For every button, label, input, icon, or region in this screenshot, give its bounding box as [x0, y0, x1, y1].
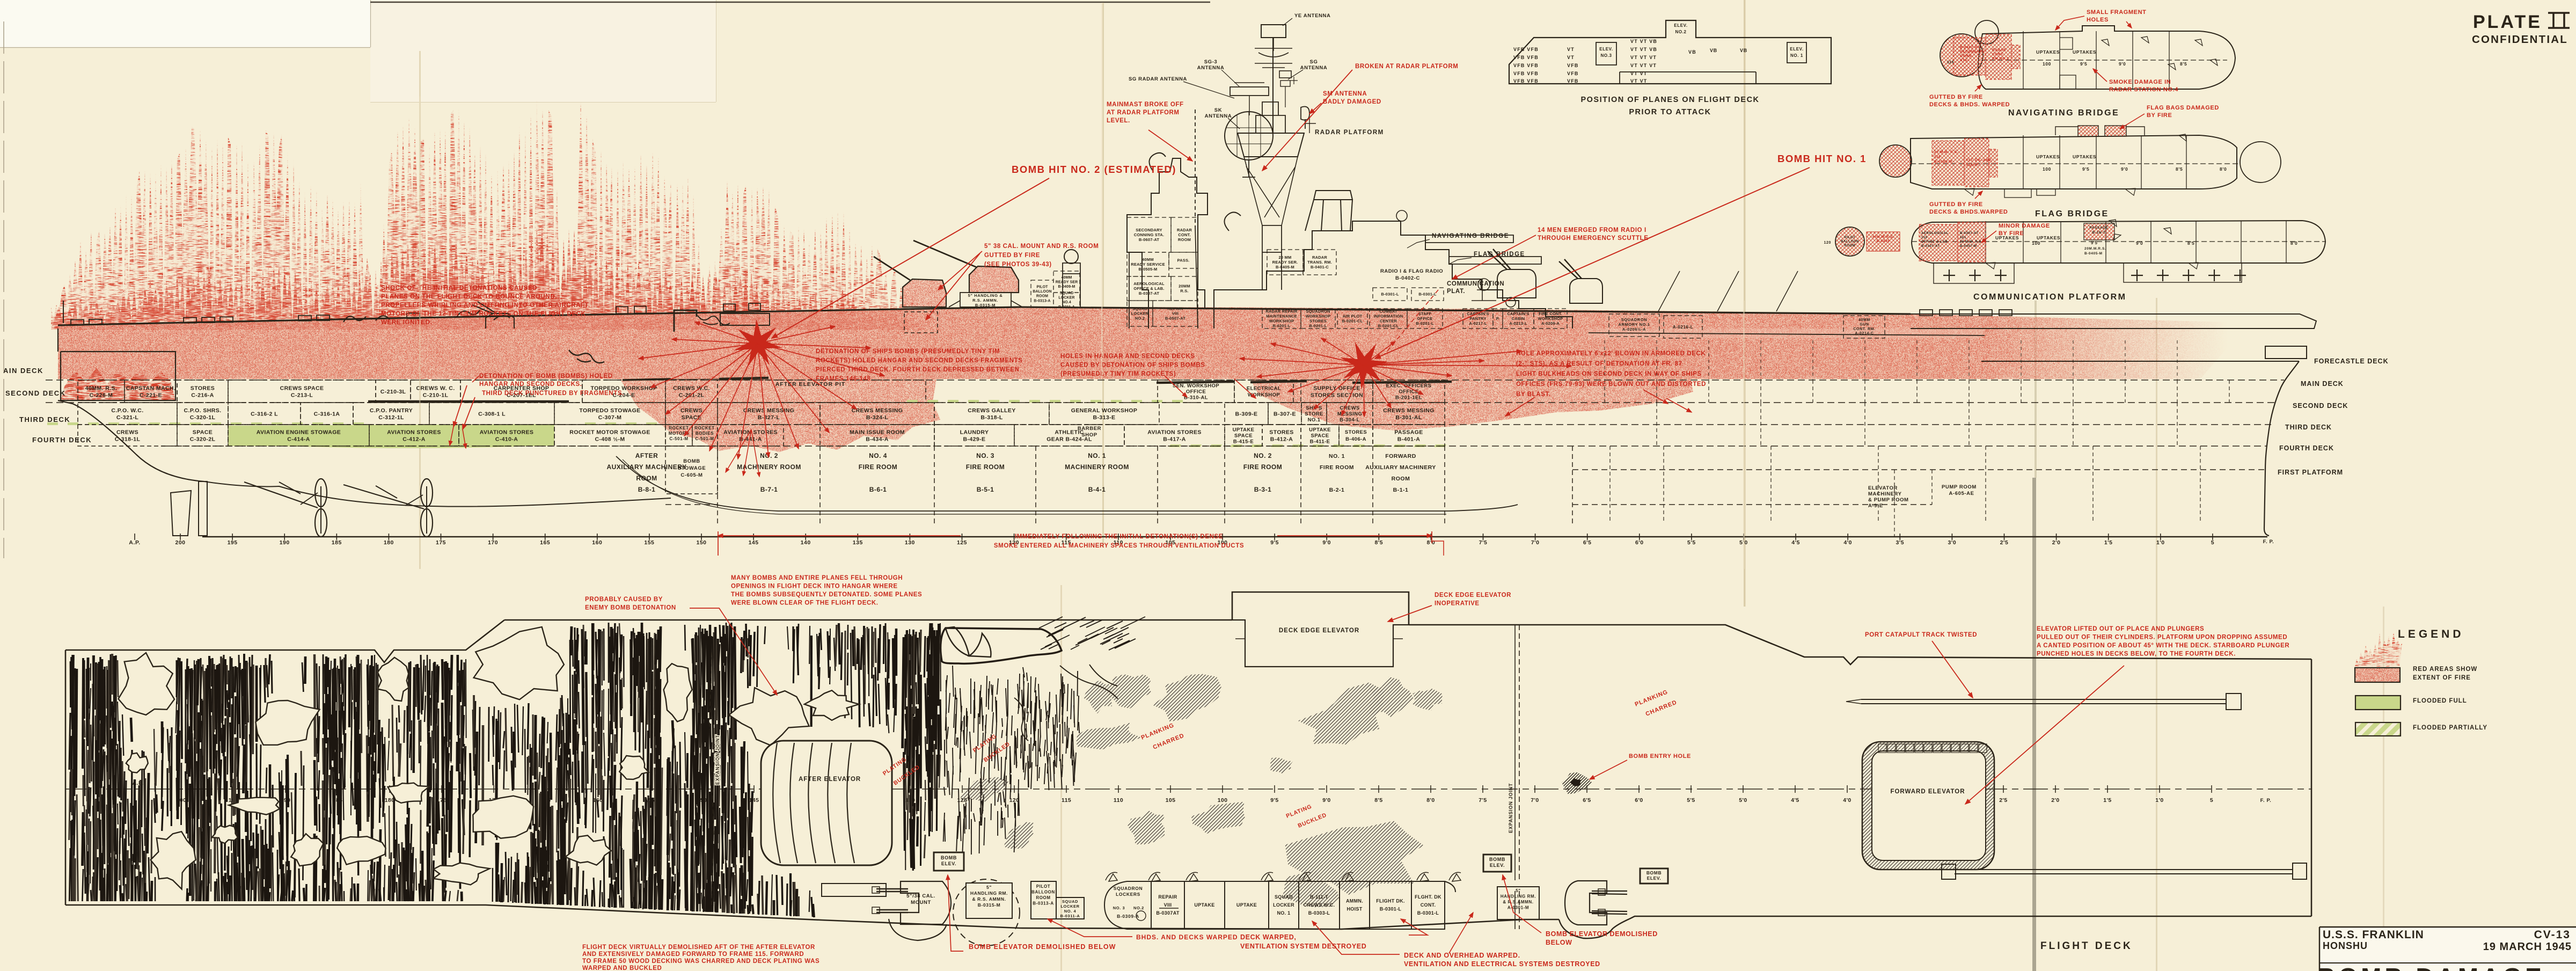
- svg-text:NO.2: NO.2: [1133, 906, 1144, 910]
- svg-text:CREWS GALLEY: CREWS GALLEY: [968, 407, 1015, 414]
- svg-text:VFB: VFB: [1567, 78, 1579, 84]
- svg-text:20 MM: 20 MM: [1279, 255, 1292, 260]
- svg-text:B-0607-AT: B-0607-AT: [1960, 46, 1980, 49]
- svg-text:UPTAKES: UPTAKES: [2036, 154, 2060, 159]
- svg-text:THROUGH EMERGENCY SCUTTLE: THROUGH EMERGENCY SCUTTLE: [1538, 235, 1648, 242]
- svg-text:B-0409-M: B-0409-M: [1058, 285, 1075, 289]
- svg-text:MACHINERY ROOM: MACHINERY ROOM: [1065, 463, 1129, 471]
- svg-text:CREWS MESSING: CREWS MESSING: [743, 407, 795, 414]
- svg-text:MINOR DAMAGE: MINOR DAMAGE: [1999, 223, 2050, 229]
- svg-text:WORKSHOP: WORKSHOP: [1269, 319, 1294, 324]
- svg-text:PROBABLY CAUSED BY: PROBABLY CAUSED BY: [585, 596, 663, 603]
- svg-text:BOMB HIT NO. 2 (ESTIMATED): BOMB HIT NO. 2 (ESTIMATED): [1012, 164, 1176, 175]
- svg-text:B-0505-M: B-0505-M: [1934, 160, 1952, 164]
- svg-text:B-0201-L: B-0201-L: [1309, 324, 1327, 328]
- svg-text:UPTAKES: UPTAKES: [2073, 49, 2096, 55]
- svg-text:100: 100: [2043, 166, 2051, 172]
- svg-text:B-429-E: B-429-E: [963, 436, 986, 442]
- svg-text:5'5: 5'5: [1687, 797, 1695, 804]
- svg-text:PLATE: PLATE: [2473, 12, 2542, 32]
- svg-text:AMMN.: AMMN.: [1346, 899, 1363, 904]
- svg-text:PUMP ROOM: PUMP ROOM: [1942, 484, 1977, 490]
- svg-text:C-213-L: C-213-L: [291, 392, 313, 398]
- svg-text:OPENINGS IN FLIGHT DECK INTO H: OPENINGS IN FLIGHT DECK INTO HANGAR WHER…: [731, 583, 898, 590]
- svg-text:F. P.: F. P.: [2260, 798, 2272, 804]
- svg-text:100: 100: [1218, 797, 1228, 804]
- svg-text:OFFICE & LAB: OFFICE & LAB: [1921, 240, 1948, 244]
- svg-text:4'5: 4'5: [1791, 539, 1800, 546]
- svg-text:5"/38 CAL.: 5"/38 CAL.: [906, 893, 935, 899]
- svg-text:ENEMY BOMB DETONATION: ENEMY BOMB DETONATION: [585, 605, 676, 611]
- svg-text:VFB VFB: VFB VFB: [1513, 71, 1539, 76]
- svg-text:ELEV.: ELEV.: [1599, 47, 1613, 52]
- svg-text:MACHINERY ROOM: MACHINERY ROOM: [737, 463, 801, 471]
- svg-text:40M.M.R.S.: 40M.M.R.S.: [1872, 235, 1894, 239]
- svg-text:THIRD DECK PUNCTURED BY FRAGME: THIRD DECK PUNCTURED BY FRAGMENTS.: [482, 390, 624, 397]
- svg-text:B-0505-M: B-0505-M: [1139, 267, 1158, 272]
- svg-text:VFB VFB: VFB VFB: [1513, 78, 1539, 84]
- svg-text:1'0: 1'0: [2156, 539, 2165, 546]
- svg-text:BOMB HIT NO. 1: BOMB HIT NO. 1: [1777, 153, 1867, 164]
- svg-text:B-7-1: B-7-1: [760, 486, 778, 493]
- svg-text:40MM: 40MM: [1858, 318, 1870, 322]
- svg-text:20 M.M. R.S.: 20 M.M. R.S.: [1960, 240, 1982, 244]
- svg-text:INOPERATIVE: INOPERATIVE: [1435, 601, 1480, 607]
- svg-text:CREWS MESSING: CREWS MESSING: [852, 407, 903, 414]
- svg-text:SQUADRON: SQUADRON: [1114, 886, 1143, 891]
- svg-text:B-304-L: B-304-L: [1340, 417, 1360, 423]
- svg-text:VFB VFB: VFB VFB: [1513, 47, 1539, 52]
- svg-text:B-0301-L: B-0301-L: [1418, 292, 1436, 297]
- svg-text:SQUAD: SQUAD: [1060, 291, 1074, 295]
- svg-text:VFB VFB: VFB VFB: [1513, 55, 1539, 60]
- svg-text:ELEVATOR: ELEVATOR: [1868, 485, 1898, 491]
- svg-text:C-221-E: C-221-E: [140, 392, 162, 398]
- svg-text:WERE IGNITED.: WERE IGNITED.: [381, 319, 432, 326]
- svg-text:STORE: STORE: [1305, 411, 1323, 417]
- svg-text:& R.S.AMMN.: & R.S.AMMN.: [1503, 900, 1533, 904]
- svg-text:7'0: 7'0: [1531, 797, 1539, 804]
- svg-text:ELEV.: ELEV.: [1790, 47, 1803, 52]
- svg-text:B-0301-L: B-0301-L: [1381, 292, 1399, 297]
- svg-text:AT RADAR PLATFORM: AT RADAR PLATFORM: [1107, 109, 1180, 116]
- svg-text:EXTENT OF FIRE: EXTENT OF FIRE: [2413, 675, 2471, 681]
- svg-text:BALLOON: BALLOON: [1033, 290, 1051, 294]
- svg-text:HONSHU: HONSHU: [2323, 940, 2368, 951]
- svg-text:SQUADRON: SQUADRON: [1306, 309, 1330, 314]
- svg-text:CV-13: CV-13: [2534, 929, 2571, 941]
- svg-text:VT VT VB: VT VT VB: [1630, 39, 1657, 44]
- svg-text:B-0301-L: B-0301-L: [1380, 907, 1402, 912]
- svg-text:125: 125: [957, 539, 967, 546]
- svg-text:C-316-2 L: C-316-2 L: [251, 411, 278, 417]
- svg-text:SMALL FRAGMENT: SMALL FRAGMENT: [2087, 9, 2146, 16]
- svg-text:PROPELLERS WHIRLING AND CUTTIN: PROPELLERS WHIRLING AND CUTTING INTO OTH…: [381, 302, 590, 309]
- svg-text:B-0307-AT: B-0307-AT: [1960, 232, 1979, 235]
- svg-text:B-0607-AT: B-0607-AT: [1139, 237, 1160, 242]
- svg-text:FRAMES 146-148: FRAMES 146-148: [816, 376, 870, 382]
- svg-text:VT VT VT: VT VT VT: [1630, 55, 1657, 60]
- svg-text:9'0: 9'0: [2121, 166, 2128, 172]
- svg-text:LOCKER: LOCKER: [1131, 311, 1149, 316]
- svg-text:LOCKER: LOCKER: [1060, 904, 1079, 909]
- svg-text:B-0307-AT: B-0307-AT: [1139, 291, 1160, 296]
- svg-text:A-0209-A: A-0209-A: [1541, 321, 1560, 326]
- svg-text:9'0: 9'0: [2119, 61, 2126, 67]
- svg-text:CABIN: CABIN: [1512, 316, 1525, 321]
- svg-text:B-0307-AT: B-0307-AT: [1921, 245, 1940, 248]
- svg-text:CREWS: CREWS: [680, 407, 702, 414]
- svg-text:B-307-E: B-307-E: [1274, 411, 1296, 417]
- svg-text:B-441-A: B-441-A: [739, 436, 762, 442]
- svg-text:ROOM: ROOM: [636, 474, 657, 482]
- svg-text:PASSAGE: PASSAGE: [2089, 226, 2109, 230]
- svg-text:UPTAKE: UPTAKE: [1194, 902, 1214, 908]
- svg-text:B-417-A: B-417-A: [1163, 436, 1185, 442]
- svg-text:5: 5: [2210, 797, 2213, 804]
- svg-text:BOMB: BOMB: [941, 855, 957, 860]
- svg-text:THIRD DECK: THIRD DECK: [19, 415, 70, 424]
- svg-text:185: 185: [332, 539, 342, 546]
- svg-text:FLAG BAGS DAMAGED: FLAG BAGS DAMAGED: [2147, 105, 2219, 111]
- svg-text:B-0405-M: B-0405-M: [2084, 252, 2103, 255]
- svg-text:GUN: GUN: [1860, 323, 1869, 326]
- svg-text:VIII: VIII: [1164, 902, 1172, 908]
- svg-text:190: 190: [280, 539, 290, 546]
- svg-text:FOURTH DECK: FOURTH DECK: [32, 436, 92, 444]
- svg-text:FORWARD: FORWARD: [1385, 453, 1416, 459]
- svg-text:DECK AND OVERHEAD WARPED.: DECK AND OVERHEAD WARPED.: [1404, 952, 1520, 959]
- svg-text:9'0: 9'0: [2136, 240, 2143, 246]
- svg-text:NO. 3: NO. 3: [976, 452, 994, 459]
- svg-text:B-0201-CL: B-0201-CL: [1378, 324, 1399, 328]
- svg-text:110: 110: [1934, 155, 1941, 159]
- svg-text:GUTTED BY FIRE: GUTTED BY FIRE: [984, 252, 1040, 259]
- svg-text:CREWS: CREWS: [116, 429, 138, 435]
- svg-text:9'5: 9'5: [1270, 797, 1278, 804]
- svg-text:STORES SECTION: STORES SECTION: [1311, 392, 1363, 398]
- svg-text:FIRE ROOM: FIRE ROOM: [859, 463, 898, 471]
- svg-text:FLAG BRIDGE: FLAG BRIDGE: [2035, 209, 2109, 218]
- svg-text:IMMEDIATELY FOLLOWING THE I: IMMEDIATELY FOLLOWING THE INITIAL DETONA…: [1015, 534, 1223, 540]
- svg-text:UPTAKE: UPTAKE: [1309, 427, 1331, 433]
- svg-text:AVIATION STORES: AVIATION STORES: [387, 429, 441, 435]
- svg-text:FLOODED PARTIALLY: FLOODED PARTIALLY: [2413, 725, 2487, 731]
- svg-text:FIRE ROOM: FIRE ROOM: [1243, 463, 1283, 471]
- svg-text:8'5: 8'5: [2180, 61, 2187, 67]
- svg-text:REPAIR: REPAIR: [1158, 894, 1177, 900]
- svg-text:120: 120: [1824, 241, 1831, 245]
- svg-text:7'5: 7'5: [1479, 797, 1487, 804]
- svg-text:7'0: 7'0: [1531, 539, 1540, 546]
- svg-text:REPAIR: REPAIR: [1168, 306, 1183, 311]
- svg-text:EQUIP.: EQUIP.: [1966, 163, 1979, 167]
- svg-text:NO. 4: NO. 4: [869, 452, 887, 459]
- svg-text:HOLE APPROXIMATELY 6'x12' BLOW: HOLE APPROXIMATELY 6'x12' BLOWN IN ARMOR…: [1516, 351, 1706, 357]
- svg-text:DECKS & BHDS. WARPED: DECKS & BHDS. WARPED: [1929, 101, 2010, 108]
- svg-text:HOIST: HOIST: [1346, 907, 1362, 912]
- svg-text:9'5: 9'5: [2091, 240, 2098, 245]
- svg-text:MAIN ISSUE ROOM: MAIN ISSUE ROOM: [850, 429, 905, 435]
- svg-text:NO. 1: NO. 1: [1277, 910, 1290, 916]
- svg-text:WERE BLOWN CLEAR OF THE FLIGHT: WERE BLOWN CLEAR OF THE FLIGHT DECK.: [731, 600, 879, 607]
- svg-text:TRANS. RM.: TRANS. RM.: [1307, 260, 1332, 265]
- svg-text:SMOKE DAMAGE IN: SMOKE DAMAGE IN: [2109, 79, 2171, 85]
- svg-text:ARMORY NO.1: ARMORY NO.1: [1618, 322, 1650, 327]
- svg-text:B-327-L: B-327-L: [758, 414, 780, 421]
- svg-text:CONNING STA.: CONNING STA.: [1134, 232, 1164, 237]
- svg-text:B-0315-M: B-0315-M: [978, 902, 1001, 908]
- svg-text:STORES: STORES: [1345, 429, 1367, 435]
- svg-text:B-0402-C: B-0402-C: [1395, 275, 1420, 281]
- svg-text:OFFICE & LAB.: OFFICE & LAB.: [1133, 286, 1164, 291]
- svg-text:LAUNDRY: LAUNDRY: [960, 429, 989, 435]
- svg-text:8'5: 8'5: [1374, 539, 1383, 546]
- svg-text:COMMUNICATION: COMMUNICATION: [1447, 281, 1504, 287]
- svg-text:R.S. AMMN.: R.S. AMMN.: [972, 298, 998, 303]
- svg-text:OFFICE: OFFICE: [1399, 389, 1418, 395]
- svg-text:ELEV.: ELEV.: [1647, 875, 1662, 881]
- svg-text:C-410-A: C-410-A: [495, 436, 518, 442]
- svg-text:B-415-E: B-415-E: [1233, 439, 1254, 444]
- svg-text:6'0: 6'0: [1635, 539, 1644, 546]
- svg-text:AVIATION STORES: AVIATION STORES: [1147, 429, 1202, 435]
- svg-text:NO. 1: NO. 1: [1329, 453, 1345, 459]
- svg-text:9'0: 9'0: [1322, 539, 1331, 546]
- svg-text:STORES: STORES: [191, 385, 215, 391]
- svg-text:C-201-2L: C-201-2L: [679, 392, 705, 398]
- svg-text:2'5: 2'5: [1999, 797, 2007, 804]
- svg-text:& R.S. AMMN.: & R.S. AMMN.: [972, 896, 1006, 902]
- svg-text:2'5: 2'5: [2000, 539, 2009, 546]
- svg-text:A-0301-M: A-0301-M: [1507, 906, 1529, 910]
- svg-text:1'5: 1'5: [2104, 539, 2113, 546]
- svg-text:B-0407-M: B-0407-M: [1960, 245, 1977, 248]
- svg-text:CONT.: CONT.: [1421, 902, 1436, 908]
- svg-text:VT: VT: [1567, 55, 1575, 60]
- svg-text:7'5: 7'5: [1479, 539, 1488, 546]
- svg-text:BY FIRE: BY FIRE: [1999, 230, 2024, 237]
- svg-text:B-0201-L: B-0201-L: [1272, 324, 1290, 328]
- svg-text:FLOODED FULL: FLOODED FULL: [2413, 698, 2467, 704]
- svg-text:C-408 ½-M: C-408 ½-M: [595, 436, 625, 442]
- svg-text:A-0214-C: A-0214-C: [1855, 332, 1874, 335]
- svg-text:BALLOON: BALLOON: [1031, 890, 1055, 895]
- svg-text:VFB: VFB: [1567, 63, 1579, 68]
- svg-text:AUXILIARY MACHINERY: AUXILIARY MACHINERY: [606, 463, 686, 471]
- svg-text:110: 110: [1921, 236, 1928, 239]
- svg-text:C-210-1L: C-210-1L: [423, 392, 449, 398]
- svg-text:CAPSTAN MACH.: CAPSTAN MACH.: [126, 385, 176, 391]
- svg-text:145: 145: [749, 539, 759, 546]
- svg-text:UPTAKE: UPTAKE: [1236, 902, 1257, 908]
- svg-text:20M.M.R.S.: 20M.M.R.S.: [2084, 247, 2106, 251]
- svg-text:5'5: 5'5: [1687, 539, 1696, 546]
- svg-text:2'0: 2'0: [2051, 797, 2059, 804]
- svg-text:BOMB ELEVATOR DEMOLISHED BELOW: BOMB ELEVATOR DEMOLISHED BELOW: [969, 943, 1116, 951]
- svg-text:1'5: 1'5: [2103, 797, 2111, 804]
- svg-text:VT: VT: [1567, 47, 1575, 52]
- svg-text:BOMB: BOMB: [1646, 870, 1662, 875]
- svg-text:3'5: 3'5: [1896, 539, 1904, 546]
- svg-text:SG RADAR ANTENNA: SG RADAR ANTENNA: [1129, 76, 1187, 82]
- svg-text:PIERCED THIRD DECK. FOURTH DE: PIERCED THIRD DECK. FOURTH DECK DEPRESSE…: [816, 367, 1020, 373]
- svg-text:DETONATION OF BOMB (BOMBS) HOL: DETONATION OF BOMB (BOMBS) HOLED: [479, 373, 613, 379]
- svg-text:C-308-1 L: C-308-1 L: [478, 411, 506, 417]
- svg-text:VB: VB: [1688, 49, 1696, 55]
- svg-text:MESSING: MESSING: [1337, 411, 1363, 417]
- svg-text:195: 195: [228, 539, 238, 546]
- svg-text:STA.: STA.: [1960, 59, 1969, 62]
- svg-text:SECONDARY: SECONDARY: [1960, 50, 1985, 54]
- svg-text:NO. 3: NO. 3: [1113, 906, 1125, 910]
- svg-text:B-4-1: B-4-1: [1088, 486, 1106, 493]
- svg-text:B-434-A: B-434-A: [866, 436, 888, 442]
- svg-text:UPTAKES: UPTAKES: [2037, 235, 2060, 240]
- svg-text:DECK EDGE ELEVATOR: DECK EDGE ELEVATOR: [1279, 627, 1359, 634]
- svg-text:B-8-1: B-8-1: [638, 486, 656, 493]
- svg-text:ROCKET: ROCKET: [694, 426, 714, 430]
- svg-text:AFTER: AFTER: [635, 452, 658, 459]
- svg-text:B-0311-A: B-0311-A: [1058, 305, 1075, 309]
- svg-text:BY FIRE: BY FIRE: [2147, 112, 2172, 119]
- svg-text:A-9-E: A-9-E: [1868, 503, 1883, 509]
- svg-text:MOUNT: MOUNT: [911, 900, 931, 906]
- svg-text:ANTENNA: ANTENNA: [1300, 65, 1328, 71]
- svg-text:155: 155: [644, 539, 654, 546]
- svg-text:FLIGHT DECK VIRTUALLY DEMOLISH: FLIGHT DECK VIRTUALLY DEMOLISHED AFT OF …: [582, 944, 815, 951]
- svg-text:NO.1: NO.1: [1308, 417, 1321, 423]
- svg-text:175: 175: [436, 539, 446, 546]
- svg-text:CONT.: CONT.: [1992, 53, 2004, 56]
- svg-text:HANDLING RM.: HANDLING RM.: [970, 890, 1008, 896]
- svg-text:ROCKETS) HOLED HANGAR AND SECO: ROCKETS) HOLED HANGAR AND SECOND DECKS F…: [816, 357, 1023, 364]
- svg-text:40MM: 40MM: [1142, 257, 1154, 262]
- svg-text:FOURTH DECK: FOURTH DECK: [2279, 444, 2334, 452]
- svg-text:ELEVATOR LIFTED OUT OF PLACE A: ELEVATOR LIFTED OUT OF PLACE AND PLUNGER…: [2037, 626, 2204, 632]
- svg-text:UPTAKE: UPTAKE: [1233, 427, 1255, 433]
- svg-text:165: 165: [540, 539, 550, 546]
- svg-text:8'5: 8'5: [1374, 797, 1382, 804]
- svg-text:BADLY DAMAGED: BADLY DAMAGED: [1323, 99, 1381, 105]
- svg-text:CREWS MESSING: CREWS MESSING: [1383, 407, 1435, 414]
- svg-text:CONT. RM.: CONT. RM.: [1853, 327, 1875, 331]
- svg-text:VT VT VB: VT VT VB: [1630, 47, 1657, 52]
- svg-text:CENTER: CENTER: [1380, 319, 1397, 324]
- svg-text:C.P.O. SHRS.: C.P.O. SHRS.: [184, 407, 222, 414]
- svg-text:WORKSHOP: WORKSHOP: [1306, 314, 1331, 319]
- svg-text:C-412-A: C-412-A: [402, 436, 425, 442]
- svg-text:CONN.: CONN.: [1960, 54, 1973, 58]
- svg-text:6'5: 6'5: [1583, 797, 1591, 804]
- svg-text:F. P.: F. P.: [2263, 539, 2274, 545]
- svg-text:8'0: 8'0: [2290, 240, 2297, 246]
- svg-text:40MM. R.S.: 40MM. R.S.: [85, 385, 117, 391]
- svg-text:CREWS W.C.: CREWS W.C.: [1304, 902, 1335, 908]
- svg-text:PORT CATAPULT TRACK TWISTED: PORT CATAPULT TRACK TWISTED: [1865, 632, 1977, 638]
- svg-text:SPACE: SPACE: [1234, 433, 1253, 439]
- svg-text:FIRE ROOM: FIRE ROOM: [1320, 464, 1354, 471]
- svg-text:SEN. WORKSHOP: SEN. WORKSHOP: [1173, 383, 1219, 389]
- svg-text:3'0: 3'0: [1948, 539, 1957, 546]
- svg-text:NO.2: NO.2: [1675, 30, 1686, 34]
- svg-text:SHIPS: SHIPS: [1306, 405, 1322, 411]
- svg-text:RADIO I & FLAG RADIO: RADIO I & FLAG RADIO: [1380, 268, 1443, 274]
- svg-text:AEROLOGICAL: AEROLOGICAL: [1921, 232, 1949, 235]
- svg-text:PUNCHED HOLES IN DECKS BELOW,: PUNCHED HOLES IN DECKS BELOW, TO THE FOU…: [2037, 651, 2236, 658]
- svg-text:ROOM: ROOM: [1036, 295, 1048, 298]
- svg-text:CAPTAIN'S: CAPTAIN'S: [1507, 311, 1529, 316]
- svg-text:AFTER ELEVATOR: AFTER ELEVATOR: [799, 776, 861, 783]
- svg-text:LOCKER: LOCKER: [1273, 902, 1294, 908]
- svg-text:BROKEN AT RADAR PLATFORM: BROKEN AT RADAR PLATFORM: [1355, 63, 1458, 70]
- svg-text:GUTTED BY FIRE: GUTTED BY FIRE: [1929, 201, 1983, 208]
- svg-text:CREWS SPACE: CREWS SPACE: [280, 385, 324, 391]
- svg-text:SHOP: SHOP: [1081, 432, 1097, 438]
- svg-text:THE BOMBS SUBSEQUENTLY DETONAT: THE BOMBS SUBSEQUENTLY DETONATED. SOME P…: [731, 592, 922, 598]
- svg-text:CAUSED BY DETONATION OF SHIPS: CAUSED BY DETONATION OF SHIPS BOMBS: [1060, 362, 1205, 369]
- svg-text:A-0217-L: A-0217-L: [1469, 321, 1487, 326]
- svg-text:STORES: STORES: [1309, 319, 1327, 324]
- svg-text:B-0313-A: B-0313-A: [1033, 901, 1053, 906]
- svg-text:8'0: 8'0: [2220, 166, 2227, 172]
- svg-text:CREWS W.C.: CREWS W.C.: [673, 385, 710, 391]
- svg-text:READY SER: READY SER: [1056, 280, 1078, 284]
- svg-text:VB: VB: [1740, 48, 1747, 53]
- svg-text:ROCKET MOTOR STOWAGE: ROCKET MOTOR STOWAGE: [569, 429, 650, 435]
- svg-text:AUXILIARY MACHINERY: AUXILIARY MACHINERY: [1365, 464, 1436, 471]
- svg-text:200: 200: [175, 539, 185, 546]
- svg-text:C-226-M: C-226-M: [90, 392, 113, 398]
- svg-text:COMMUNICATION PLATFORM: COMMUNICATION PLATFORM: [1973, 293, 2126, 302]
- svg-text:B-6-1: B-6-1: [869, 486, 887, 493]
- svg-text:BY BLAST.: BY BLAST.: [1516, 391, 1551, 398]
- svg-text:C.P.O. W.C.: C.P.O. W.C.: [111, 407, 143, 414]
- svg-text:EXPANSION JOINT: EXPANSION JOINT: [1508, 783, 1513, 833]
- svg-text:5" HANDLING &: 5" HANDLING &: [968, 293, 1003, 298]
- svg-text:SHOCK OF THE INITIAL DETONATIO: SHOCK OF THE INITIAL DETONATIONS CAUSED: [381, 285, 537, 291]
- svg-text:B-0311-A: B-0311-A: [1060, 914, 1080, 918]
- svg-text:1'0: 1'0: [2155, 797, 2163, 804]
- svg-text:LOCKERS: LOCKERS: [1116, 892, 1140, 897]
- svg-text:NO. 1: NO. 1: [1790, 53, 1803, 58]
- svg-text:20 M.M. R.S.: 20 M.M. R.S.: [1934, 150, 1958, 154]
- svg-text:A-0216-L: A-0216-L: [1673, 325, 1694, 330]
- svg-text:FLAG BRIDGE: FLAG BRIDGE: [1474, 251, 1525, 258]
- svg-text:9'5: 9'5: [2080, 61, 2087, 67]
- svg-text:SG-3: SG-3: [1204, 59, 1218, 65]
- svg-text:BODIES: BODIES: [696, 431, 714, 436]
- svg-text:POSITION OF PLANES ON FLIG: POSITION OF PLANES ON FLIGHT DECK: [1580, 96, 1759, 104]
- svg-text:NAVIGATING BRIDGE: NAVIGATING BRIDGE: [2008, 108, 2119, 118]
- svg-text:LEGEND: LEGEND: [2398, 628, 2464, 640]
- svg-text:105: 105: [1166, 797, 1176, 804]
- svg-text:OFFICE: OFFICE: [1186, 389, 1206, 395]
- svg-text:EXEC. OFFICERS: EXEC. OFFICERS: [1386, 383, 1432, 389]
- svg-text:MANY BOMBS AND ENTIRE PLANES F: MANY BOMBS AND ENTIRE PLANES FELL THROUG…: [731, 575, 903, 581]
- svg-text:4'0: 4'0: [1843, 539, 1852, 546]
- svg-text:MOTORS OF THE 12 TINY TIM ROCK: MOTORS OF THE 12 TINY TIM ROCKETS ON THE…: [381, 311, 586, 317]
- svg-text:EXPANSION JOINT: EXPANSION JOINT: [715, 735, 720, 785]
- svg-text:NO. 2: NO. 2: [760, 452, 778, 459]
- svg-text:SQUAD: SQUAD: [1132, 306, 1147, 311]
- svg-text:SECOND DECK: SECOND DECK: [5, 389, 66, 397]
- svg-text:170: 170: [488, 539, 498, 546]
- svg-text:AIR PLOT: AIR PLOT: [1343, 314, 1363, 319]
- svg-text:B-0405-M: B-0405-M: [1276, 265, 1294, 269]
- svg-text:AEROLOGICAL: AEROLOGICAL: [1133, 281, 1165, 286]
- svg-text:A.P.: A.P.: [129, 539, 140, 546]
